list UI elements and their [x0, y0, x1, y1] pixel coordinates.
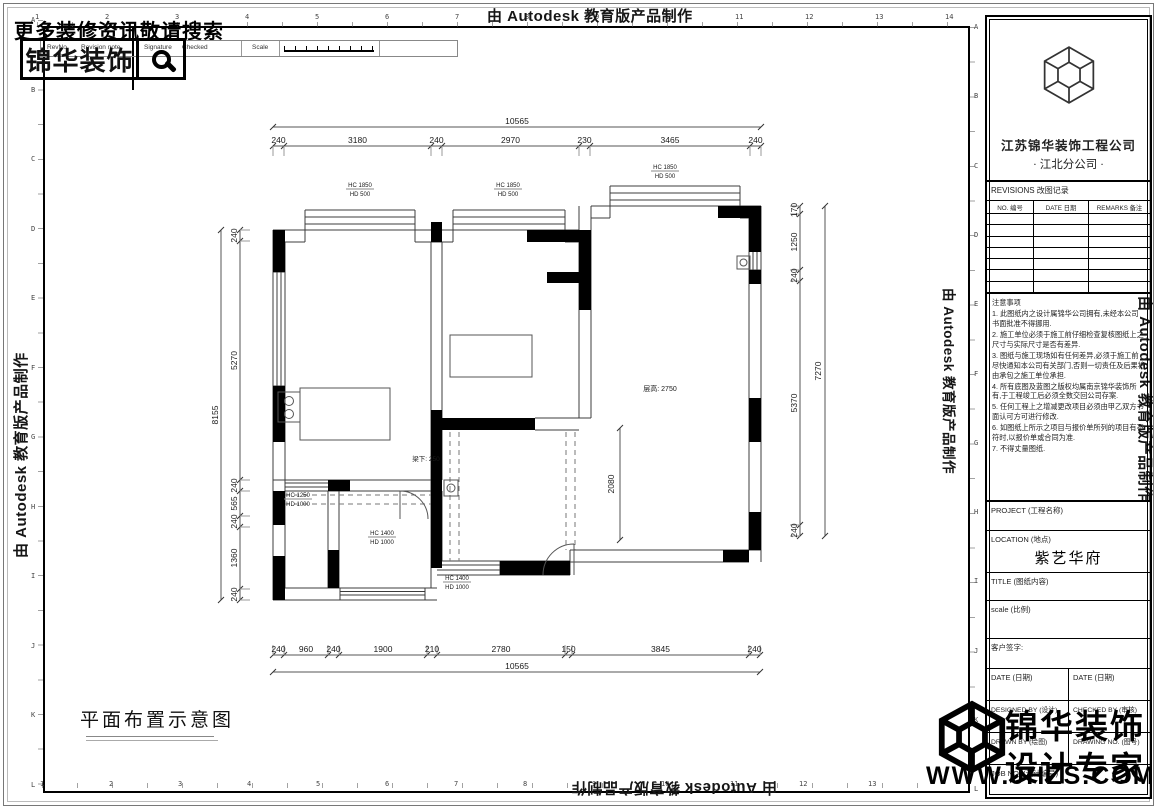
rev-col-date: DATE 日期 — [1034, 201, 1089, 213]
ruler-letter-left: C — [31, 155, 35, 163]
dim-label: 240 — [789, 523, 799, 537]
plan-title-underline — [86, 736, 214, 737]
scale-label: scale (比例) — [991, 604, 1031, 615]
dim-label: 3845 — [651, 644, 670, 654]
revision-empty-cell — [1089, 214, 1150, 224]
ruler-letter-right: J — [974, 647, 978, 655]
autodesk-credit-left: 由 Autodesk 教育版产品制作 — [10, 288, 31, 558]
revision-empty-cell — [987, 214, 1034, 224]
revision-empty-cell — [987, 259, 1034, 269]
ruler-number-bottom: 12 — [799, 780, 807, 788]
title-cell: TITLE (图纸内容) — [987, 572, 1150, 600]
ruler-number-bottom: 4 — [247, 780, 251, 788]
ruler-number-bottom: 7 — [454, 780, 458, 788]
revision-empty-row — [987, 269, 1150, 280]
revision-empty-cell — [1089, 282, 1150, 292]
search-icon — [152, 50, 171, 69]
strip-divider — [241, 41, 242, 56]
revision-empty-row — [987, 224, 1150, 235]
note-item: 5. 任何工程上之增减更改项目必须由甲乙双方书面认可方可进行修改. — [992, 402, 1145, 422]
ruler-number-top: 11 — [735, 13, 743, 21]
plan-title: 平面布置示意图 — [80, 705, 234, 732]
revision-empty-cell — [1089, 225, 1150, 235]
revision-empty-row — [987, 281, 1150, 292]
dim-label: 1250 — [789, 232, 799, 251]
beam-label: 梁下: 250 — [412, 454, 440, 463]
ruler-ticks-right — [970, 27, 975, 789]
autodesk-credit-right-inner: 由 Autodesk 教育版产品制作 — [940, 288, 960, 518]
ruler-number-bottom: 5 — [316, 780, 320, 788]
dim-label: 3465 — [661, 135, 680, 145]
dim-label: 210 — [425, 644, 439, 654]
ruler-letter-left: E — [31, 294, 35, 302]
ruler-number-bottom: 6 — [385, 780, 389, 788]
note-item: 4. 所有底图及蓝图之版权均属南京锦华装饰所有,于工程竣工后必须全数交回公司存案… — [992, 382, 1145, 402]
ruler-number-top: 5 — [315, 13, 319, 21]
ruler-letter-left: H — [31, 503, 35, 511]
ruler-letter-left: B — [31, 86, 35, 94]
company-cell: 江苏锦华装饰工程公司 · 江北分公司 · — [987, 17, 1150, 180]
rev-col-remarks: REMARKS 备注 — [1089, 201, 1150, 213]
dim-label: 960 — [299, 644, 313, 654]
window-label: HC 1400 — [445, 576, 469, 582]
dim-label: 2970 — [501, 135, 520, 145]
watermark-url: WWW.JHZS.COM — [926, 762, 1156, 791]
revision-empty-cell — [987, 225, 1034, 235]
ruler-letter-right: H — [974, 508, 978, 516]
title-label: TITLE (图纸内容) — [991, 576, 1049, 587]
date-row: DATE (日期) DATE (日期) — [987, 668, 1150, 700]
ceiling-height-label: 层高: 2750 — [643, 384, 677, 393]
revision-empty-cell — [1034, 248, 1089, 258]
ruler-number-top: 13 — [875, 13, 883, 21]
ruler-number-top: 4 — [245, 13, 249, 21]
scale-cell: scale (比例) — [987, 600, 1150, 638]
dim-label: 240 — [747, 644, 761, 654]
revision-empty-cell — [1034, 259, 1089, 269]
window-label: HC 1250 — [286, 493, 310, 499]
location-label: LOCATION (地点) — [991, 534, 1051, 545]
ruler-letter-right: D — [974, 231, 978, 239]
revision-empty-cell — [987, 237, 1034, 247]
ruler-number-bottom: 13 — [868, 780, 876, 788]
ruler-letter-left: L — [31, 781, 35, 789]
ruler-letter-left: F — [31, 364, 35, 372]
dim-label: 3180 — [348, 135, 367, 145]
window-label: HD 1000 — [370, 540, 394, 546]
client-sign-cell: 客户签字: — [987, 638, 1150, 668]
ruler-ticks-left — [38, 20, 43, 790]
ruler-letter-right: F — [974, 370, 978, 378]
dim-label: 240 — [789, 268, 799, 282]
ruler-letter-right: G — [974, 439, 978, 447]
window-label: HD 500 — [498, 192, 519, 198]
dim-label: 1900 — [374, 644, 393, 654]
window-label: HC 1400 — [370, 531, 394, 537]
dim-label: 2780 — [492, 644, 511, 654]
autodesk-credit-top: 由 Autodesk 教育版产品制作 — [487, 5, 693, 26]
date-label-left: DATE (日期) — [991, 672, 1033, 683]
revision-empty-cell — [987, 248, 1034, 258]
window-label: HD 500 — [350, 192, 371, 198]
window-label: HC 1850 — [653, 165, 677, 171]
dim-label: 240 — [326, 644, 340, 654]
ruler-letter-right: A — [974, 23, 978, 31]
company-branch: · 江北分公司 · — [987, 156, 1150, 172]
walls-solid-layer — [273, 206, 761, 600]
dim-opening: 2080 — [606, 474, 616, 493]
ruler-letter-right: I — [974, 577, 978, 585]
strip-divider — [379, 41, 380, 56]
scale-bar — [284, 46, 374, 52]
ruler-number-top: 7 — [455, 13, 459, 21]
dim-label: 1360 — [229, 548, 239, 567]
ruler-letter-left: I — [31, 572, 35, 580]
dim-label: 240 — [271, 644, 285, 654]
dim-label: 565 — [229, 496, 239, 510]
note-item: 6. 如图纸上所示之项目与报价单所列的项目有不符时,以报价单或合同为准. — [992, 423, 1145, 443]
floor-plan-canvas: 2403180240297023034652402409602401900210… — [210, 110, 910, 690]
date-label-right: DATE (日期) — [1073, 672, 1115, 683]
location-value: 紫艺华府 — [987, 547, 1150, 568]
window-label: HC 1850 — [496, 183, 520, 189]
window-label: HD 1000 — [445, 585, 469, 591]
notes-list: 1. 此图纸内之设计属锦华公司拥有,未经本公司书面批准不得挪用.2. 施工单位必… — [992, 309, 1145, 454]
company-cube-logo-icon — [1040, 43, 1098, 107]
note-item: 1. 此图纸内之设计属锦华公司拥有,未经本公司书面批准不得挪用. — [992, 309, 1145, 329]
cad-drawing-page: { "autodesk_credit": "由 Autodesk 教育版产品制作… — [0, 0, 1158, 810]
ruler-number-top: 12 — [805, 13, 813, 21]
revision-empty-cell — [1089, 270, 1150, 280]
note-item: 3. 图纸与施工现场如有任何差异,必须于施工前尽快通知本公司有关部门,否则一切责… — [992, 351, 1145, 381]
dim-label: 240 — [229, 587, 239, 601]
ruler-letter-left: D — [31, 225, 35, 233]
dim-label: 240 — [429, 135, 443, 145]
revision-empty-row — [987, 258, 1150, 269]
cell-divider — [1068, 669, 1069, 700]
client-sign-label: 客户签字: — [991, 642, 1023, 653]
dim-label: 240 — [748, 135, 762, 145]
revision-empty-cell — [1034, 225, 1089, 235]
window-label: HD 500 — [655, 174, 676, 180]
dim-label: 240 — [229, 478, 239, 492]
ruler-letter-left: J — [31, 642, 35, 650]
dim-label: 150 — [561, 644, 575, 654]
watermark-brand-line1: 锦华装饰 — [1005, 700, 1145, 748]
company-logo-text: 锦华装饰 — [23, 41, 136, 77]
revision-empty-row — [987, 236, 1150, 247]
ruler-number-bottom: 1 — [40, 780, 44, 788]
revision-empty-cell — [987, 270, 1034, 280]
dim-label: 230 — [577, 135, 591, 145]
company-logo-box: 锦华装饰 — [20, 38, 186, 80]
ruler-letter-left: G — [31, 433, 35, 441]
rev-col-no: NO. 编号 — [987, 201, 1034, 213]
revision-empty-cell — [1089, 248, 1150, 258]
dim-total-bottom: 10565 — [505, 661, 529, 671]
revisions-header-row: NO. 编号 DATE 日期 REMARKS 备注 — [987, 200, 1150, 213]
revision-empty-cell — [1034, 270, 1089, 280]
dim-label: 240 — [229, 514, 239, 528]
location-cell: LOCATION (地点) 紫艺华府 — [987, 530, 1150, 572]
revisions-empty-rows — [987, 213, 1150, 292]
revision-empty-cell — [1089, 237, 1150, 247]
title-block: 江苏锦华装饰工程公司 · 江北分公司 · REVISIONS 改图记录 NO. … — [985, 15, 1152, 799]
note-item: 7. 不得丈量图纸. — [992, 444, 1145, 454]
dim-label: 170 — [789, 203, 799, 217]
revision-empty-cell — [1089, 259, 1150, 269]
dim-total-right: 7270 — [813, 361, 823, 380]
ruler-letter-left: K — [31, 711, 35, 719]
dim-label: 5370 — [789, 393, 799, 412]
ruler-number-top: 6 — [385, 13, 389, 21]
ruler-letter-right: E — [974, 300, 978, 308]
ruler-number-bottom: 2 — [109, 780, 113, 788]
note-item: 2. 施工单位必须于施工前仔细检查复核图纸上之尺寸与实际尺寸是否有差异. — [992, 330, 1145, 350]
project-cell: PROJECT (工程名称) — [987, 500, 1150, 530]
window-label: HC 1850 — [348, 183, 372, 189]
autodesk-credit-bottom: 由 Autodesk 教育版产品制作 — [497, 778, 777, 799]
dim-total-top: 10565 — [505, 116, 529, 126]
strip-scale-label: Scale — [252, 44, 268, 51]
dim-label: 240 — [229, 228, 239, 242]
ruler-number-bottom: 3 — [178, 780, 182, 788]
walls-thin-layer — [273, 186, 761, 600]
plan-title-underline2 — [86, 740, 218, 741]
logo-magnifier-cell — [136, 41, 183, 77]
fixtures-layer — [278, 256, 750, 575]
strip-divider — [279, 41, 280, 56]
revision-empty-cell — [1034, 282, 1089, 292]
ruler-letter-right: B — [974, 92, 978, 100]
dim-total-left: 8155 — [210, 405, 220, 424]
revision-empty-cell — [1034, 237, 1089, 247]
project-label: PROJECT (工程名称) — [991, 505, 1063, 516]
window-label: HD 1000 — [286, 502, 310, 508]
notes-cell: 注意事项 1. 此图纸内之设计属锦华公司拥有,未经本公司书面批准不得挪用.2. … — [987, 292, 1150, 500]
dim-label: 240 — [271, 135, 285, 145]
notes-title: 注意事项 — [992, 298, 1145, 308]
revision-empty-row — [987, 213, 1150, 224]
dim-label: 5270 — [229, 351, 239, 370]
ruler-number-top: 14 — [945, 13, 953, 21]
revision-empty-cell — [1034, 214, 1089, 224]
company-name: 江苏锦华装饰工程公司 — [987, 135, 1150, 154]
revisions-title: REVISIONS 改图记录 — [991, 185, 1069, 196]
revisions-title-cell: REVISIONS 改图记录 — [987, 180, 1150, 200]
ruler-letter-right: C — [974, 162, 978, 170]
revision-empty-cell — [987, 282, 1034, 292]
revision-empty-row — [987, 247, 1150, 258]
